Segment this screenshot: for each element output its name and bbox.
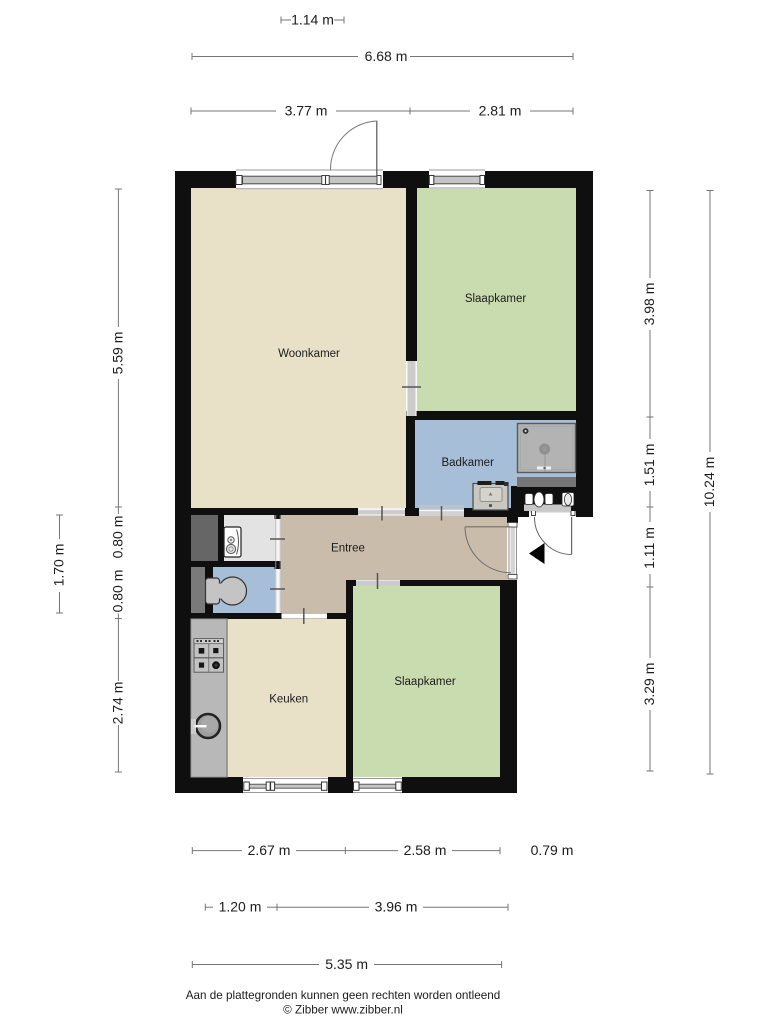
svg-text:10.24 m: 10.24 m	[701, 457, 717, 508]
svg-text:5.35 m: 5.35 m	[325, 956, 368, 972]
svg-text:1.14 m: 1.14 m	[291, 12, 334, 28]
svg-text:2.81 m: 2.81 m	[479, 103, 522, 119]
svg-text:3.96 m: 3.96 m	[375, 899, 418, 915]
svg-text:Slaapkamer: Slaapkamer	[394, 676, 456, 688]
svg-text:1.11 m: 1.11 m	[641, 527, 657, 569]
svg-text:5.59 m: 5.59 m	[110, 332, 126, 375]
svg-text:3.98 m: 3.98 m	[641, 283, 657, 326]
svg-text:3.29 m: 3.29 m	[641, 663, 657, 706]
svg-text:Slaapkamer: Slaapkamer	[465, 293, 527, 305]
svg-text:0.80 m: 0.80 m	[110, 516, 126, 559]
svg-text:Aan de plattegronden kunnen ge: Aan de plattegronden kunnen geen rechten…	[186, 989, 501, 1002]
svg-text:Badkamer: Badkamer	[441, 457, 494, 469]
svg-text:Woonkamer: Woonkamer	[278, 348, 340, 360]
svg-text:1.70 m: 1.70 m	[51, 544, 67, 587]
svg-text:2.67 m: 2.67 m	[248, 842, 291, 858]
svg-text:Entree: Entree	[331, 543, 365, 555]
svg-text:© Zibber www.zibber.nl: © Zibber www.zibber.nl	[283, 1004, 403, 1017]
svg-text:1.51 m: 1.51 m	[641, 444, 657, 487]
svg-text:3.77 m: 3.77 m	[285, 103, 328, 119]
svg-text:0.80 m: 0.80 m	[110, 570, 126, 613]
svg-text:6.68 m: 6.68 m	[365, 48, 408, 64]
svg-text:Keuken: Keuken	[269, 694, 308, 706]
svg-text:2.58 m: 2.58 m	[404, 842, 447, 858]
svg-text:0.79 m: 0.79 m	[531, 842, 574, 858]
svg-text:1.20 m: 1.20 m	[219, 899, 262, 915]
svg-text:2.74 m: 2.74 m	[110, 682, 126, 725]
